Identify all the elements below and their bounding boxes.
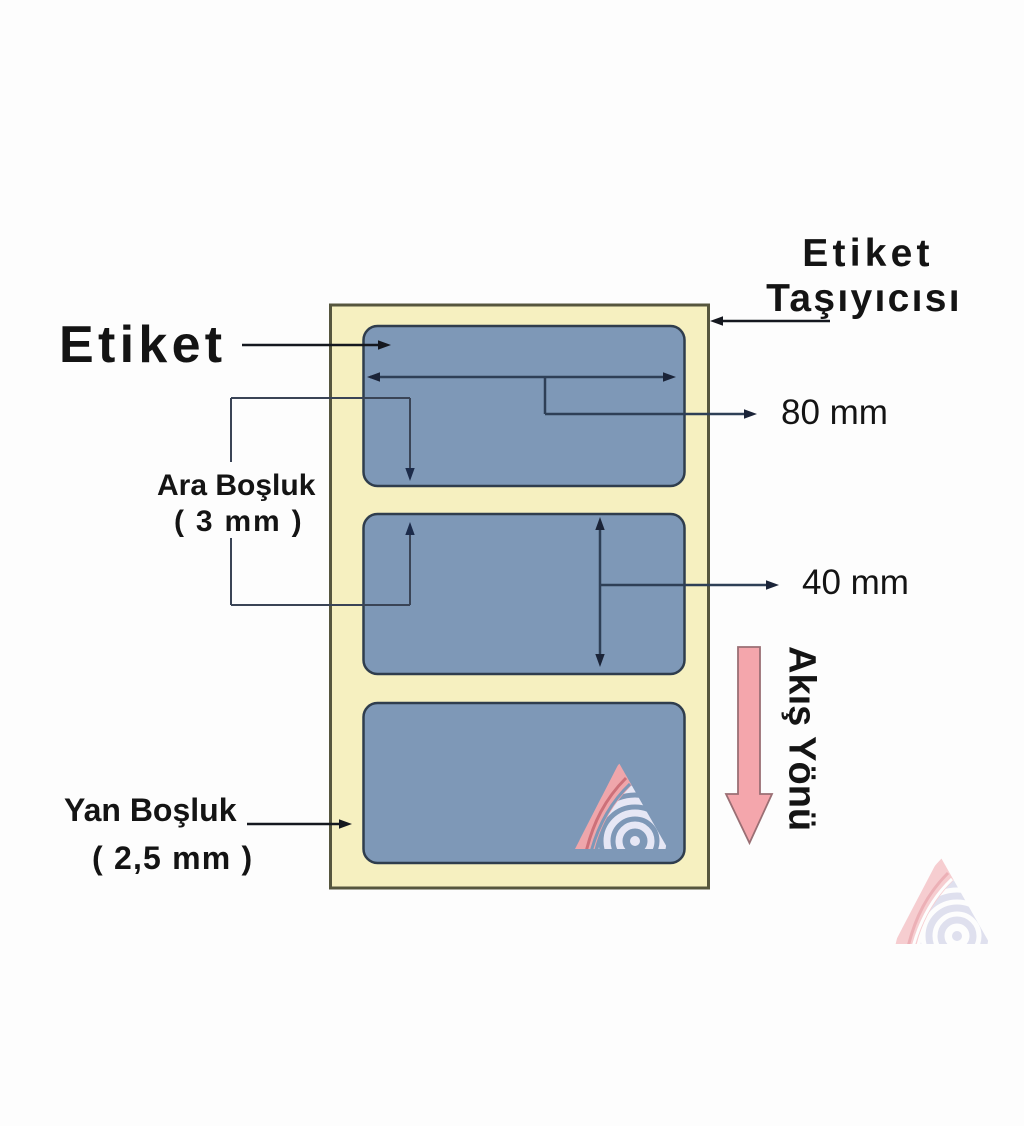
svg-text:Taşıyıcısı: Taşıyıcısı	[766, 277, 962, 320]
svg-text:Akış Yönü: Akış Yönü	[781, 646, 823, 831]
svg-text:Etiket: Etiket	[802, 232, 933, 275]
svg-text:Ara Boşluk: Ara Boşluk	[157, 469, 316, 502]
svg-text:( 2,5 mm ): ( 2,5 mm )	[92, 840, 253, 876]
svg-text:( 3 mm ): ( 3 mm )	[174, 505, 303, 538]
svg-text:40 mm: 40 mm	[802, 563, 909, 602]
svg-text:80 mm: 80 mm	[781, 393, 888, 432]
svg-text:Yan Boşluk: Yan Boşluk	[64, 792, 237, 828]
svg-text:Etiket: Etiket	[59, 316, 226, 374]
